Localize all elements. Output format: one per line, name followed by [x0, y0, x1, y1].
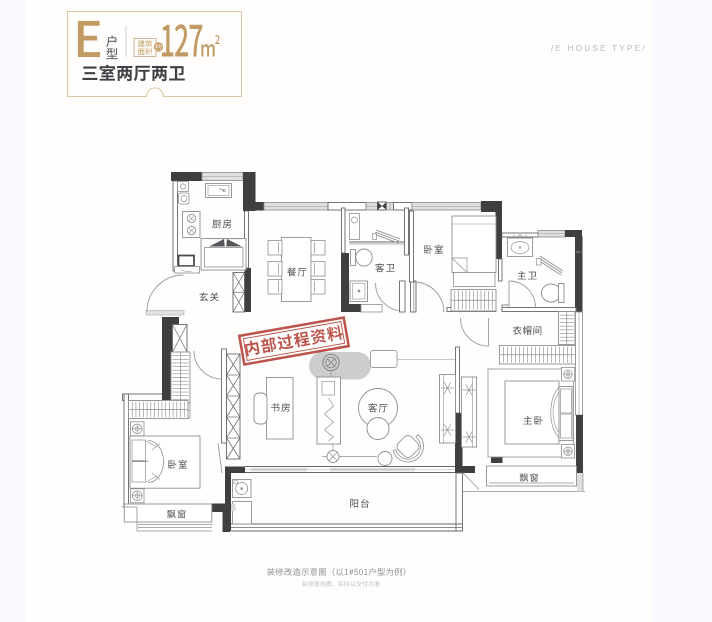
svg-text:/E HOUSE TYPE/: /E HOUSE TYPE/: [551, 44, 647, 53]
